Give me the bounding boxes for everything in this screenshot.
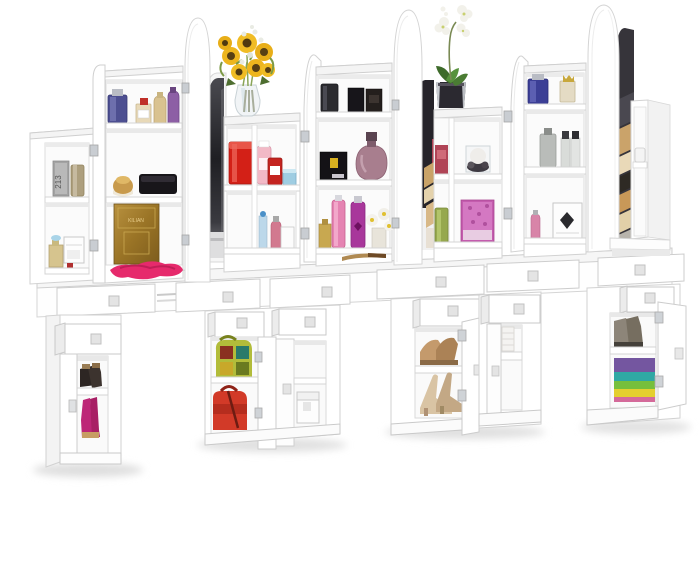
svg-text:KILIAN: KILIAN [128, 218, 144, 224]
svg-text:213: 213 [54, 175, 63, 189]
